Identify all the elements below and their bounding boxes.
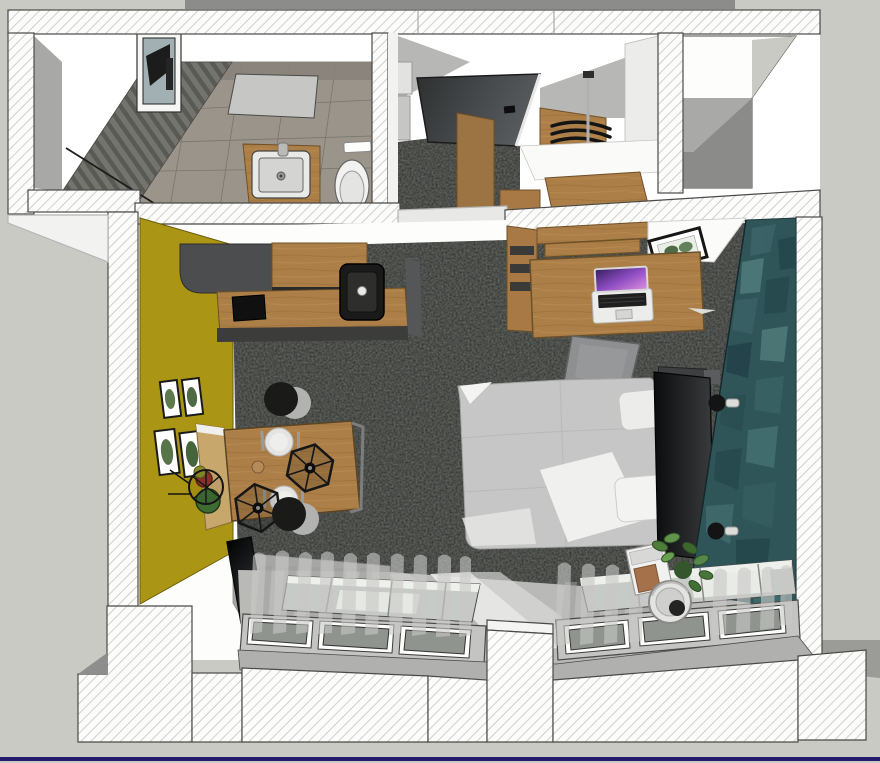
wall-left — [8, 33, 34, 214]
wall-top — [8, 10, 820, 34]
render-stage: Studio apartment — top-down 3D interior … — [0, 0, 880, 763]
laptop — [591, 266, 654, 323]
wall-hall-niche — [658, 33, 683, 193]
door-handle — [504, 105, 516, 113]
wall-bottom-2 — [428, 676, 487, 742]
kitchen-faucet — [358, 287, 367, 296]
wall-bathroom-hall — [372, 33, 388, 209]
wall-corridor-south — [28, 190, 140, 212]
top-exterior-band — [185, 0, 735, 9]
wall-east — [796, 217, 822, 673]
pole-cap — [583, 71, 594, 78]
window-pier — [487, 630, 553, 742]
wall-bathroom-south — [135, 203, 400, 224]
stool-2 — [272, 497, 306, 531]
shower-tray — [228, 74, 318, 118]
stool-1 — [264, 382, 298, 416]
wardrobe-wood-side — [457, 113, 494, 212]
laptop-trackpad — [616, 309, 632, 319]
counter-front-edge — [217, 326, 408, 342]
laptop-screen — [595, 267, 648, 293]
cooktop — [232, 295, 266, 321]
3d-viewport[interactable]: Studio apartment — top-down 3D interior … — [0, 0, 880, 763]
pepper-mill — [252, 461, 264, 473]
bathroom-wall-shadow — [34, 36, 62, 192]
wall-bottom-right-corner — [798, 650, 866, 740]
wall-bottom-left-step — [192, 673, 242, 742]
round-basket — [649, 581, 691, 623]
faucet — [278, 143, 288, 156]
laptop-keyboard — [598, 293, 647, 308]
wall-bottom-1 — [242, 668, 428, 742]
viewport-bottom-edge — [0, 757, 880, 761]
wall-west — [108, 212, 138, 608]
flush-plate — [344, 141, 371, 152]
kitchen-tall-unit — [180, 244, 272, 293]
wall-bathroom-hall-face — [388, 33, 398, 209]
bathroom-window — [137, 30, 181, 112]
